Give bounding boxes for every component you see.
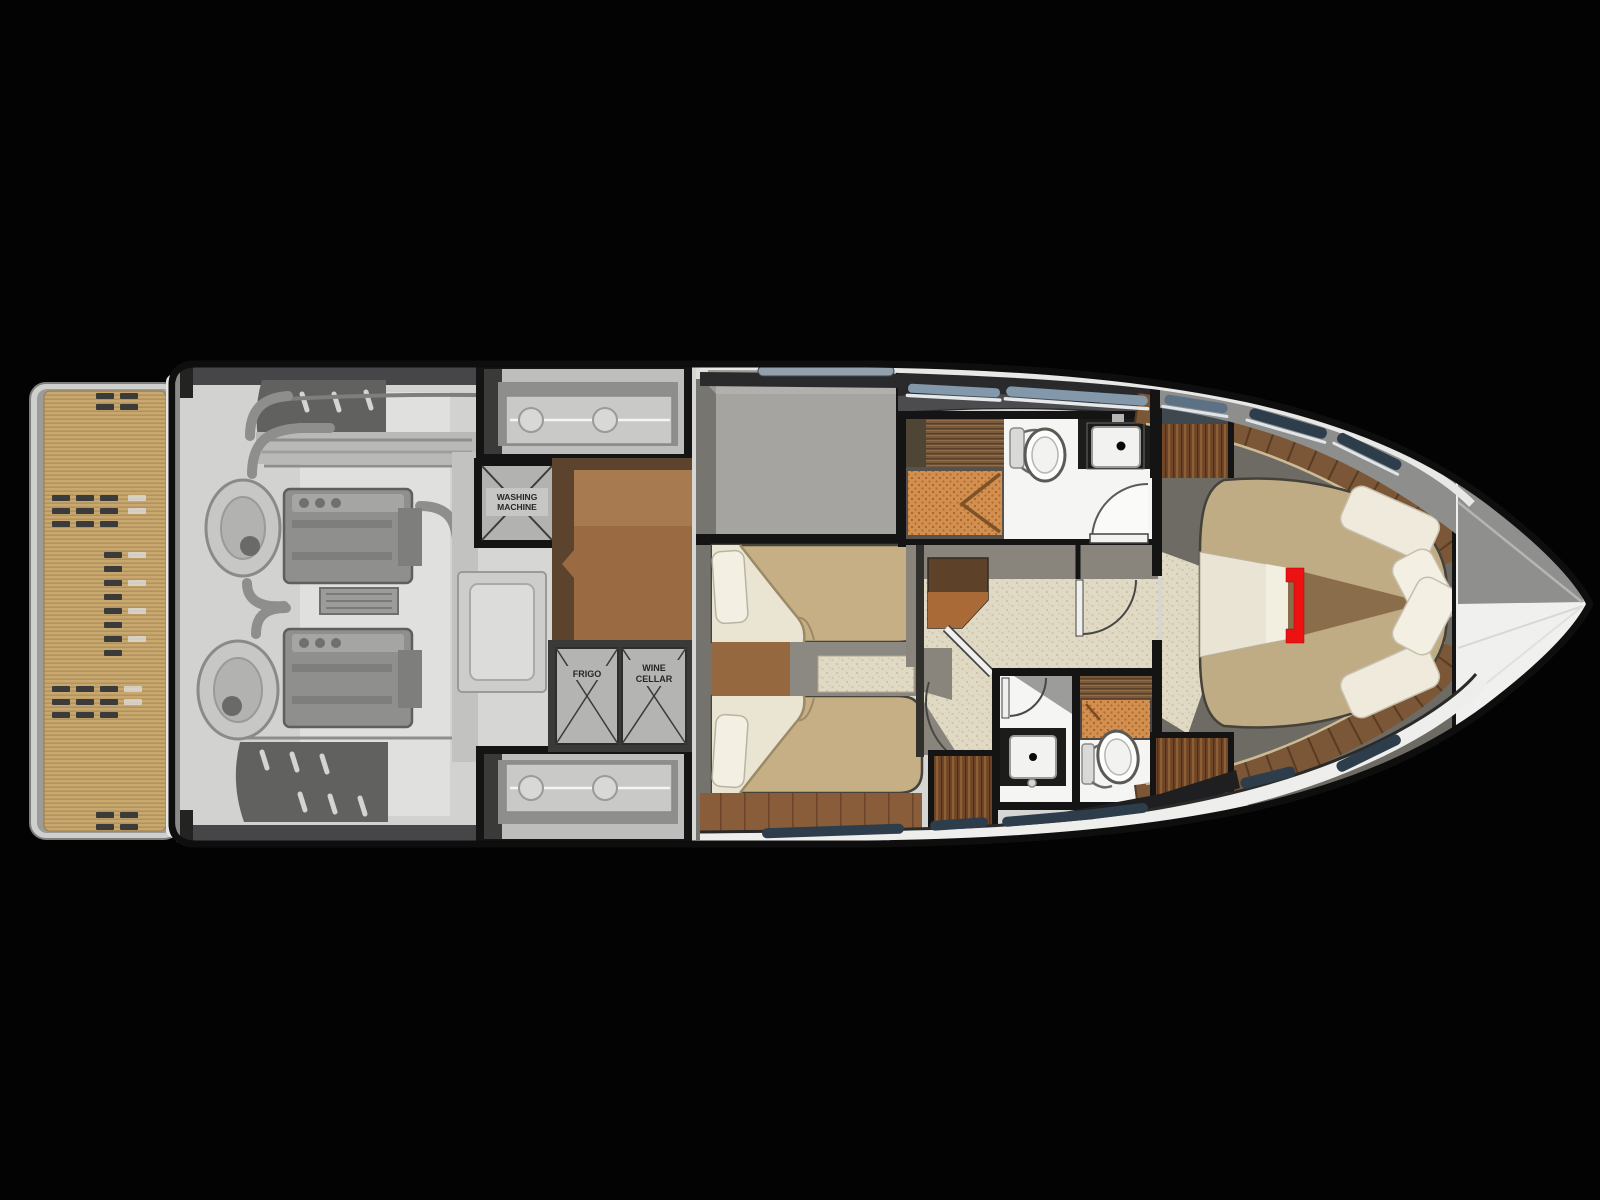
svg-text:WINE: WINE (642, 663, 666, 673)
svg-text:MACHINE: MACHINE (497, 502, 537, 512)
svg-text:CELLAR: CELLAR (636, 674, 673, 684)
svg-text:WASHING: WASHING (497, 492, 538, 502)
svg-text:FRIGO: FRIGO (573, 669, 602, 679)
